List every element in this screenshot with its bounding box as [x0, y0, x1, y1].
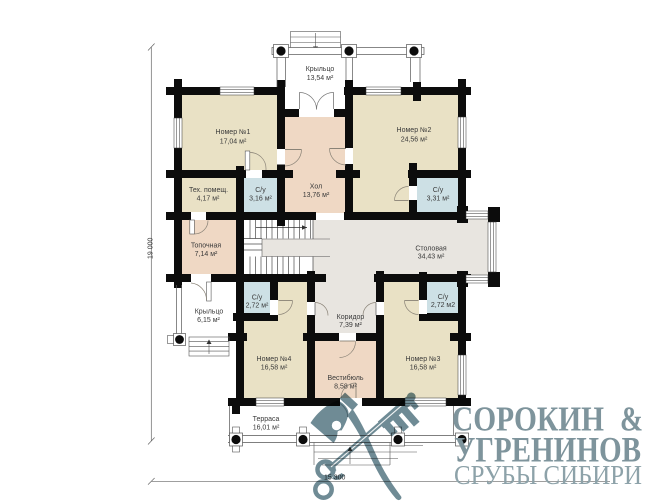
svg-text:С/у: С/у	[255, 187, 266, 194]
svg-text:3,31 м²: 3,31 м²	[427, 196, 450, 203]
svg-text:Терраса: Терраса	[253, 416, 280, 423]
svg-text:8,58 м²: 8,58 м²	[334, 384, 357, 391]
svg-text:Топочная: Топочная	[191, 243, 222, 250]
svg-text:С/у: С/у	[252, 295, 263, 302]
svg-text:16,58 м²: 16,58 м²	[410, 365, 437, 372]
svg-text:34,43 м²: 34,43 м²	[418, 254, 445, 261]
svg-text:3,16 м²: 3,16 м²	[249, 196, 272, 203]
svg-text:Крыльцо: Крыльцо	[195, 309, 224, 316]
svg-text:СРУБЫ СИБИРИ: СРУБЫ СИБИРИ	[454, 460, 642, 490]
svg-text:Вестибюль: Вестибюль	[327, 374, 363, 382]
svg-text:6,15 м²: 6,15 м²	[197, 317, 220, 324]
svg-text:С/у: С/у	[433, 187, 444, 194]
svg-text:16,01 м²: 16,01 м²	[253, 425, 280, 432]
svg-text:7,14 м²: 7,14 м²	[195, 251, 218, 258]
svg-text:13,76 м²: 13,76 м²	[303, 192, 330, 199]
svg-text:Крыльцо: Крыльцо	[306, 66, 335, 73]
svg-text:С/у: С/у	[438, 294, 449, 301]
svg-text:2,72 м2: 2,72 м2	[431, 302, 455, 309]
svg-text:7,39 м²: 7,39 м²	[339, 322, 362, 329]
svg-text:Номер №4: Номер №4	[257, 356, 292, 363]
svg-text:2,72 м²: 2,72 м²	[246, 303, 269, 310]
svg-text:19 000: 19 000	[148, 237, 155, 259]
svg-text:Номер №3: Номер №3	[406, 356, 441, 363]
svg-text:Коридор: Коридор	[337, 314, 365, 321]
svg-text:13,54 м²: 13,54 м²	[307, 75, 334, 82]
svg-text:24,56 м²: 24,56 м²	[401, 137, 428, 144]
svg-text:4,17 м²: 4,17 м²	[197, 196, 220, 203]
svg-text:Столовая: Столовая	[415, 246, 447, 253]
svg-text:16,58 м²: 16,58 м²	[261, 365, 288, 372]
svg-text:Тех. помещ.: Тех. помещ.	[189, 187, 228, 194]
svg-text:Номер №2: Номер №2	[397, 127, 432, 134]
svg-text:17,04 м²: 17,04 м²	[220, 139, 247, 146]
svg-text:Хол: Хол	[310, 184, 322, 191]
svg-text:Номер №1: Номер №1	[216, 129, 251, 136]
